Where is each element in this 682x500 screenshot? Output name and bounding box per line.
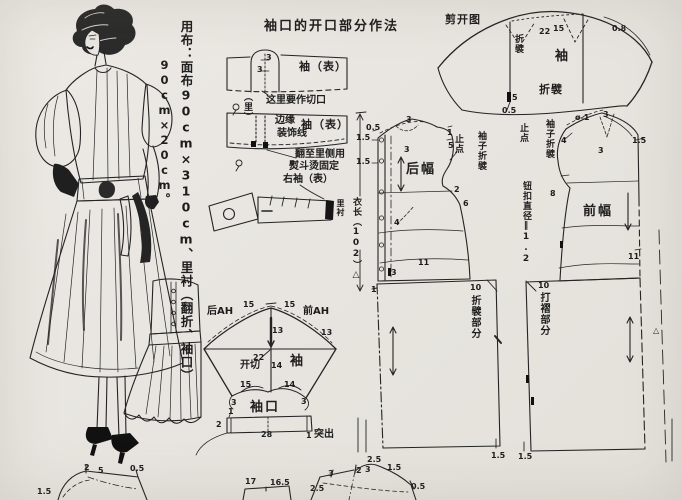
facing-2: 2 [84,464,90,472]
skirt-right-gather-part: 打褶部分 [538,292,548,336]
sleeve-outer-label-1: 袖（表） [299,61,347,72]
fp-15: 1.5 [632,137,646,145]
fp-stop-point: 止点 [518,123,527,143]
sleeve-13-center: 13 [272,327,283,335]
bp-stop-point: 止点 [453,134,462,154]
cuff-2: 2 [216,421,222,429]
spread-5: 5 [512,94,518,102]
fp-11: 11 [628,253,639,261]
sleeve-label: 袖 [290,355,305,368]
bp-4: 4 [394,219,400,227]
slit-3-lower: 3 [257,66,263,74]
sleeve-outer-label-2: 袖（表） [301,119,349,130]
garment-length-label: 衣长（102）△ [351,197,360,281]
bp-3-shoulder: 3 [406,116,412,124]
facing-05: 0.5 [130,465,144,473]
spread-08: 0.8 [612,25,626,33]
facing-5: 5 [98,467,104,475]
iron-note-2: 熨斗烫固定 [289,162,339,172]
spread-sleeve-label: 袖 [555,50,570,63]
bp-3-inner: 3 [404,146,410,154]
back-panel-label: 后幅 [406,163,436,176]
edge-note-1: 边缘 [275,116,295,126]
fp-sleeve-pleat: 袖子折襞 [544,119,553,159]
bp-15-lower: 1.5 [356,158,370,166]
fp-d1: ø-1 [575,114,589,122]
annotation-layer: 袖口的开口部分作法33袖（表）这里要作切口（里）边缘装饰线袖（表）翻至里侧用熨斗… [0,0,682,500]
cuff-1-right: 1 [306,432,312,440]
fold-triangle-mark: △ [653,327,659,335]
bp-2: 2 [454,186,460,194]
spread-fold-bottom: 折襞 [539,84,563,95]
fp-4: 4 [561,137,567,145]
bp-15-upper: 1.5 [356,134,370,142]
collar-15: 1.5 [387,464,401,472]
bp-6: 6 [463,200,469,208]
sleeve-15-bottom: 15 [240,381,251,389]
pattern-page: 用布：面布90cm×310cm、里衬（翻折、袖口） 90cm×20cm。 袖口的… [0,0,682,500]
lining-label-2: 里衬 [336,199,344,217]
cut-here-note: 这里要作切口 [266,96,326,106]
bp-1-neck: 1 [447,129,453,137]
sleeve-14-center: 14 [271,362,282,370]
skirt-left-1: 1 [371,286,377,294]
cut-open-label: 开切 [240,361,260,371]
lining-label-1: （里） [242,92,251,122]
collar-3b: 3 [365,466,371,474]
cuff-1-left: 1 [228,408,234,416]
facing-15: 1.5 [37,488,51,496]
spread-15: 15 [553,25,564,33]
sleeve-3-left: 3 [231,399,237,407]
spread-05: 0.5 [502,107,516,115]
fp-3-top: 3 [603,111,609,119]
cuff-label: 袖口 [250,401,280,414]
bp-3-waist: 3 [391,269,397,277]
back-ah-label: 后AH [207,307,233,317]
bp-05: 0.5 [366,124,380,132]
sleeve-14-bottom: 14 [284,381,295,389]
protrude-label: 突出 [314,430,334,440]
skirt-left-pleat-part: 折襞部分 [469,295,479,339]
right-sleeve-label: 右袖（表） [283,175,333,185]
collar-2: 2 [356,467,362,475]
collar-25-left: 2.5 [310,485,324,493]
sleeve-15-right: 15 [284,301,295,309]
band-17: 17 [245,478,256,486]
spread-fold-top: 折襞 [513,34,522,54]
bp-11: 11 [418,259,429,267]
fp-button-diameter: 钮扣直径‖1.2 [521,181,530,265]
front-panel-label: 前幅 [583,205,613,218]
spread-22: 22 [539,28,550,36]
sleeve-3-right: 3 [301,398,307,406]
skirt-right-15: 1.5 [518,453,532,461]
sleeve-13-right: 13 [321,329,332,337]
iron-note-1: 翻至里侧用 [295,150,345,160]
skirt-left-10: 10 [470,284,481,292]
sleeve-15-left: 15 [243,301,254,309]
howto-title: 袖口的开口部分作法 [264,20,399,33]
skirt-right-10: 10 [538,282,549,290]
spread-title: 剪开图 [445,14,481,25]
bp-sleeve-pleat: 袖子折襞 [476,131,485,171]
slit-3-upper: 3 [266,54,272,62]
band-165: 16.5 [270,479,290,487]
collar-05: 0.5 [411,483,425,491]
front-ah-label: 前AH [303,307,329,317]
collar-25-top: 2.5 [367,456,381,464]
fp-3-neck: 3 [598,147,604,155]
fp-8: 8 [550,190,556,198]
skirt-left-15: 1.5 [491,452,505,460]
cuff-28: 28 [261,431,272,439]
collar-3a: 3 [328,470,334,478]
